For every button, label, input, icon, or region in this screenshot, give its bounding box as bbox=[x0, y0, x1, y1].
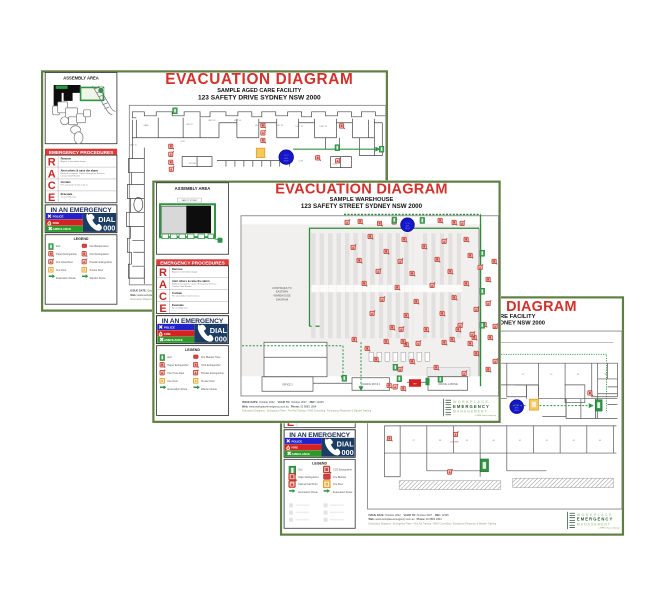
svg-text:POLICE: POLICE bbox=[53, 214, 64, 218]
svg-text:CO2 Extinguisher: CO2 Extinguisher bbox=[333, 469, 352, 472]
svg-text:Web: www.workplaceemergency.co: Web: www.workplaceemergency.com.au Phone… bbox=[242, 404, 317, 408]
svg-text:OFFICE 2: OFFICE 2 bbox=[282, 383, 293, 386]
svg-text:KITCHEN: KITCHEN bbox=[451, 442, 459, 444]
svg-text:Alert others & raise the alarm: Alert others & raise the alarm bbox=[172, 279, 210, 283]
svg-text:IN AN EMERGENCY: IN AN EMERGENCY bbox=[162, 318, 224, 325]
svg-text:YOU: YOU bbox=[405, 223, 410, 225]
svg-text:MANAGEMENT: MANAGEMENT bbox=[453, 410, 487, 414]
svg-text:HERE: HERE bbox=[284, 160, 290, 162]
svg-text:Evacuate: Evacuate bbox=[61, 192, 73, 196]
svg-text:Evacuation Diagrams - Emerge: Evacuation Diagrams - Emergency Plans - … bbox=[242, 409, 372, 412]
svg-text:Powder Extinguisher: Powder Extinguisher bbox=[90, 261, 113, 264]
svg-text:CONTINUES TO: CONTINUES TO bbox=[272, 286, 292, 290]
svg-text:UNIT 18: UNIT 18 bbox=[208, 120, 216, 122]
svg-text:ASSEMBLY AREA: ASSEMBLY AREA bbox=[63, 75, 99, 80]
svg-text:FIRE: FIRE bbox=[164, 332, 171, 336]
svg-text:DIAGRAM: DIAGRAM bbox=[276, 297, 288, 301]
svg-text:Smoke Door: Smoke Door bbox=[90, 269, 104, 272]
svg-text:Powder Extinguisher: Powder Extinguisher bbox=[201, 372, 224, 375]
svg-text:a WEM Group company: a WEM Group company bbox=[475, 415, 496, 417]
svg-text:Exit: Exit bbox=[298, 469, 302, 472]
svg-text:a WEM Group company: a WEM Group company bbox=[598, 528, 619, 530]
svg-text:C: C bbox=[159, 291, 167, 303]
svg-text:EMERGENCY: EMERGENCY bbox=[453, 404, 490, 409]
svg-text:Web: www.workplaceemergency.co: Web: www.workplaceemergency.com.au Phone… bbox=[369, 517, 443, 521]
svg-text:UNIT 19: UNIT 19 bbox=[234, 120, 242, 122]
svg-text:Fire Blanket Here: Fire Blanket Here bbox=[90, 245, 110, 248]
svg-text:UNIT 17: UNIT 17 bbox=[186, 124, 193, 126]
svg-text:LOADING DOCK 1: LOADING DOCK 1 bbox=[361, 383, 381, 386]
svg-text:Evacuation Route: Evacuation Route bbox=[56, 277, 76, 280]
svg-text:Major Extinguisher: Major Extinguisher bbox=[298, 476, 318, 479]
svg-text:Evacuation Route: Evacuation Route bbox=[168, 388, 188, 391]
svg-text:COR: COR bbox=[299, 161, 304, 163]
svg-text:UNIT 15: UNIT 15 bbox=[129, 145, 137, 147]
svg-text:COR: COR bbox=[180, 141, 185, 143]
svg-text:Fire Blanket: Fire Blanket bbox=[333, 476, 346, 479]
svg-text:CO2 Extinguisher: CO2 Extinguisher bbox=[201, 364, 221, 367]
svg-text:A: A bbox=[159, 279, 167, 291]
svg-text:Fire Blanket Here: Fire Blanket Here bbox=[201, 356, 221, 359]
svg-text:CAFE: CAFE bbox=[143, 124, 149, 127]
svg-text:UNIT 26: UNIT 26 bbox=[320, 126, 328, 128]
svg-text:LEGEND: LEGEND bbox=[312, 461, 327, 465]
svg-text:OFFICE 1 ABOVE: OFFICE 1 ABOVE bbox=[438, 383, 458, 386]
svg-text:SAMPLE WAREHOUSE: SAMPLE WAREHOUSE bbox=[330, 197, 394, 203]
svg-text:E: E bbox=[159, 303, 166, 315]
svg-text:Fire and smoke if safe to do s: Fire and smoke if safe to do so bbox=[172, 294, 200, 297]
svg-text:Warden Route: Warden Route bbox=[201, 388, 218, 391]
svg-text:FIRE: FIRE bbox=[292, 446, 299, 450]
svg-text:To assembly area: To assembly area bbox=[61, 196, 77, 199]
svg-text:Exit: Exit bbox=[56, 245, 60, 248]
svg-text:YOU: YOU bbox=[284, 155, 289, 157]
svg-text:R: R bbox=[159, 267, 167, 279]
svg-text:Contact Chief Warden: Contact Chief Warden bbox=[61, 174, 80, 177]
svg-text:Contain: Contain bbox=[172, 291, 182, 295]
svg-text:AMBULANCE: AMBULANCE bbox=[292, 452, 311, 456]
svg-text:STORE: STORE bbox=[189, 163, 196, 165]
svg-text:R: R bbox=[48, 156, 56, 168]
svg-text:SAFETY STREET: SAFETY STREET bbox=[181, 199, 198, 202]
svg-text:39: 39 bbox=[466, 440, 468, 442]
svg-text:Evacuation Diagrams - Emerge: Evacuation Diagrams - Emergency Plans - … bbox=[369, 522, 497, 525]
svg-text:EASTERN: EASTERN bbox=[276, 290, 288, 294]
svg-text:To assembly area: To assembly area bbox=[172, 307, 189, 309]
svg-text:000: 000 bbox=[103, 224, 115, 233]
svg-text:Exit: Exit bbox=[168, 356, 172, 359]
svg-text:Evacuate: Evacuate bbox=[172, 303, 184, 307]
svg-text:123 SAFETY STREET SYDNEY NSW 2: 123 SAFETY STREET SYDNEY NSW 2000 bbox=[301, 203, 423, 210]
svg-text:SAMPLE AGED CARE FACILITY: SAMPLE AGED CARE FACILITY bbox=[217, 88, 301, 94]
svg-text:AMBULANCE: AMBULANCE bbox=[53, 227, 72, 231]
svg-text:EVACUATION DIAGRAM: EVACUATION DIAGRAM bbox=[165, 71, 353, 88]
svg-text:EMERGENCY PROCEDURES: EMERGENCY PROCEDURES bbox=[160, 260, 225, 265]
svg-text:EMERGENCY: EMERGENCY bbox=[577, 517, 613, 522]
svg-text:ISSUE DATE: October 2022 VA: ISSUE DATE: October 2022 VALID TO: Octob… bbox=[242, 400, 324, 404]
svg-text:C: C bbox=[48, 180, 56, 192]
svg-text:32: 32 bbox=[550, 374, 552, 376]
svg-text:ASSEMBLY AREA: ASSEMBLY AREA bbox=[175, 186, 211, 191]
svg-text:HERE: HERE bbox=[405, 228, 411, 230]
svg-text:000: 000 bbox=[215, 334, 227, 343]
svg-text:EVACUATION DIAGRAM: EVACUATION DIAGRAM bbox=[275, 181, 448, 197]
svg-text:HERE: HERE bbox=[514, 410, 520, 412]
svg-text:AMBULANCE: AMBULANCE bbox=[164, 338, 183, 342]
svg-text:Fire Hose Reel: Fire Hose Reel bbox=[56, 261, 73, 264]
svg-text:Evacuation Route: Evacuation Route bbox=[333, 491, 353, 494]
svg-text:42: 42 bbox=[546, 440, 548, 442]
svg-text:A: A bbox=[48, 168, 56, 180]
svg-text:Paper Extinguisher: Paper Extinguisher bbox=[56, 253, 77, 256]
svg-text:000: 000 bbox=[342, 448, 354, 457]
svg-text:E: E bbox=[48, 192, 55, 204]
svg-text:LEGEND: LEGEND bbox=[74, 237, 89, 241]
svg-text:Anyone in immediate danger: Anyone in immediate danger bbox=[61, 160, 87, 163]
svg-text:Manual Call Point: Manual Call Point bbox=[298, 483, 318, 486]
svg-text:31: 31 bbox=[522, 374, 524, 376]
svg-text:Fire Door: Fire Door bbox=[168, 380, 179, 383]
svg-text:CO2 Extinguisher: CO2 Extinguisher bbox=[90, 253, 110, 256]
svg-text:Smoke Door: Smoke Door bbox=[201, 380, 215, 383]
svg-text:Fire Door: Fire Door bbox=[56, 269, 66, 272]
svg-text:UNIT 25: UNIT 25 bbox=[296, 126, 304, 128]
svg-text:FIRE: FIRE bbox=[53, 221, 60, 225]
svg-text:ISSUE DATE: October 2022 VA: ISSUE DATE: October 2022 VALID TO: Octob… bbox=[369, 513, 450, 517]
svg-text:Warden Route: Warden Route bbox=[90, 277, 106, 280]
svg-text:37: 37 bbox=[412, 440, 414, 442]
svg-text:Remove: Remove bbox=[61, 156, 72, 160]
svg-text:POLICE: POLICE bbox=[292, 439, 303, 443]
svg-text:Paper Extinguisher: Paper Extinguisher bbox=[168, 364, 189, 367]
svg-text:UNIT 23: UNIT 23 bbox=[276, 125, 284, 127]
svg-text:Evacuation Route: Evacuation Route bbox=[298, 491, 318, 494]
svg-text:WAREHOUSE: WAREHOUSE bbox=[274, 293, 291, 297]
svg-text:CLN: CLN bbox=[333, 164, 338, 166]
svg-text:Contact Chief Warden: Contact Chief Warden bbox=[172, 285, 192, 288]
svg-text:POLICE: POLICE bbox=[164, 325, 175, 329]
svg-text:IN AN EMERGENCY: IN AN EMERGENCY bbox=[50, 207, 112, 214]
svg-text:LEGEND: LEGEND bbox=[185, 348, 200, 352]
svg-text:Fire Door: Fire Door bbox=[333, 483, 343, 486]
svg-text:IN AN EMERGENCY: IN AN EMERGENCY bbox=[289, 432, 350, 439]
svg-text:EMERGENCY PROCEDURES: EMERGENCY PROCEDURES bbox=[49, 150, 113, 155]
svg-text:Alert others & raise the alarm: Alert others & raise the alarm bbox=[61, 168, 99, 172]
svg-text:41: 41 bbox=[519, 440, 521, 442]
svg-text:Anyone in immediate danger: Anyone in immediate danger bbox=[172, 271, 198, 274]
svg-text:MANAGEMENT: MANAGEMENT bbox=[577, 522, 611, 526]
svg-text:Fire and smoke if safe to do s: Fire and smoke if safe to do so bbox=[61, 184, 89, 187]
svg-text:Fire Hose Reel: Fire Hose Reel bbox=[168, 372, 185, 375]
svg-text:123 SAFETY DRIVE SYDNEY NSW 20: 123 SAFETY DRIVE SYDNEY NSW 2000 bbox=[198, 94, 321, 101]
svg-text:Remove: Remove bbox=[172, 267, 183, 271]
svg-text:Contain: Contain bbox=[61, 180, 71, 184]
